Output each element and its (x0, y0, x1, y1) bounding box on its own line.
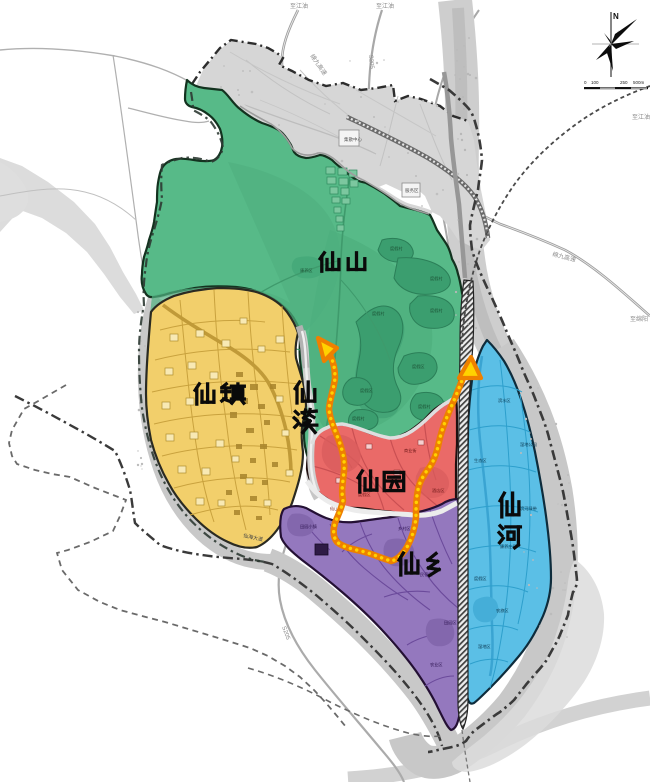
svg-text:酒店区: 酒店区 (432, 487, 445, 494)
svg-text:乡村区: 乡村区 (398, 525, 411, 531)
svg-text:农业区: 农业区 (430, 661, 443, 668)
svg-text:度假区: 度假区 (412, 363, 425, 370)
svg-text:N: N (613, 12, 619, 21)
svg-text:度假村: 度假村 (352, 415, 365, 422)
svg-text:至江油: 至江油 (376, 2, 394, 10)
svg-text:至江油: 至江油 (632, 113, 650, 121)
svg-text:度假村: 度假村 (430, 307, 443, 314)
svg-text:农旅区: 农旅区 (496, 607, 509, 614)
svg-text:湿地公园: 湿地公园 (520, 441, 537, 448)
svg-text:500m: 500m (633, 80, 645, 85)
svg-text:至绵阳: 至绵阳 (630, 315, 648, 323)
svg-text:度假村: 度假村 (418, 403, 431, 410)
svg-text:度假区: 度假区 (360, 387, 373, 394)
svg-text:集散中心: 集散中心 (344, 136, 362, 143)
svg-text:康养区: 康养区 (300, 267, 313, 274)
svg-text:田园小镇: 田园小镇 (300, 523, 317, 530)
svg-text:服务区: 服务区 (405, 187, 419, 194)
svg-text:100: 100 (591, 80, 599, 85)
svg-text:生态区: 生态区 (474, 457, 487, 463)
svg-text:度假村: 度假村 (430, 275, 443, 282)
svg-text:商业街: 商业街 (404, 447, 417, 454)
svg-text:250: 250 (620, 80, 628, 85)
svg-text:湿地区: 湿地区 (478, 643, 491, 650)
svg-text:度假区: 度假区 (474, 575, 487, 582)
svg-text:度假村: 度假村 (390, 245, 403, 252)
svg-text:滨水区: 滨水区 (498, 397, 511, 404)
svg-text:至江油: 至江油 (290, 2, 308, 10)
svg-text:滨河绿带: 滨河绿带 (520, 505, 537, 512)
svg-text:度假村: 度假村 (372, 310, 385, 317)
